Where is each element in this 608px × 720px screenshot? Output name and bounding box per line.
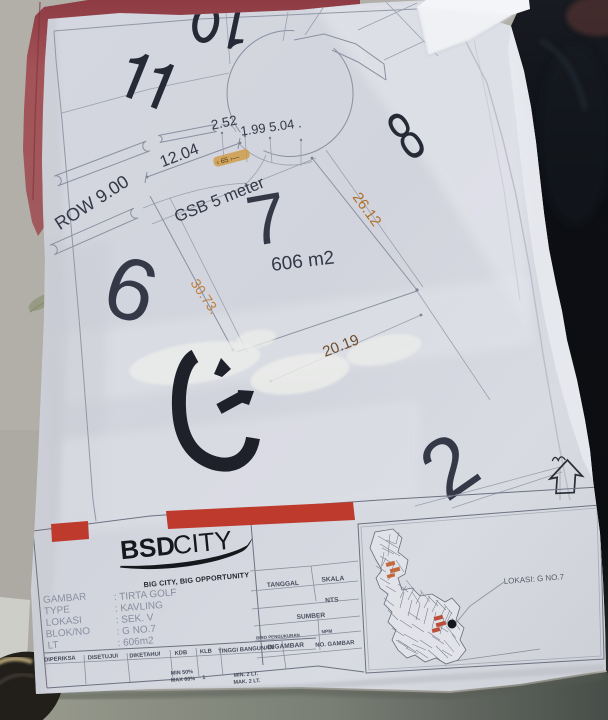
svg-text:NPM: NPM <box>321 629 332 636</box>
svg-text:1: 1 <box>202 675 205 681</box>
svg-text:BSD: BSD <box>119 530 177 565</box>
svg-text:KLB: KLB <box>200 649 212 656</box>
svg-text:NTS: NTS <box>325 597 339 605</box>
svg-text:LT: LT <box>47 640 59 652</box>
svg-text:KDB: KDB <box>174 650 187 657</box>
